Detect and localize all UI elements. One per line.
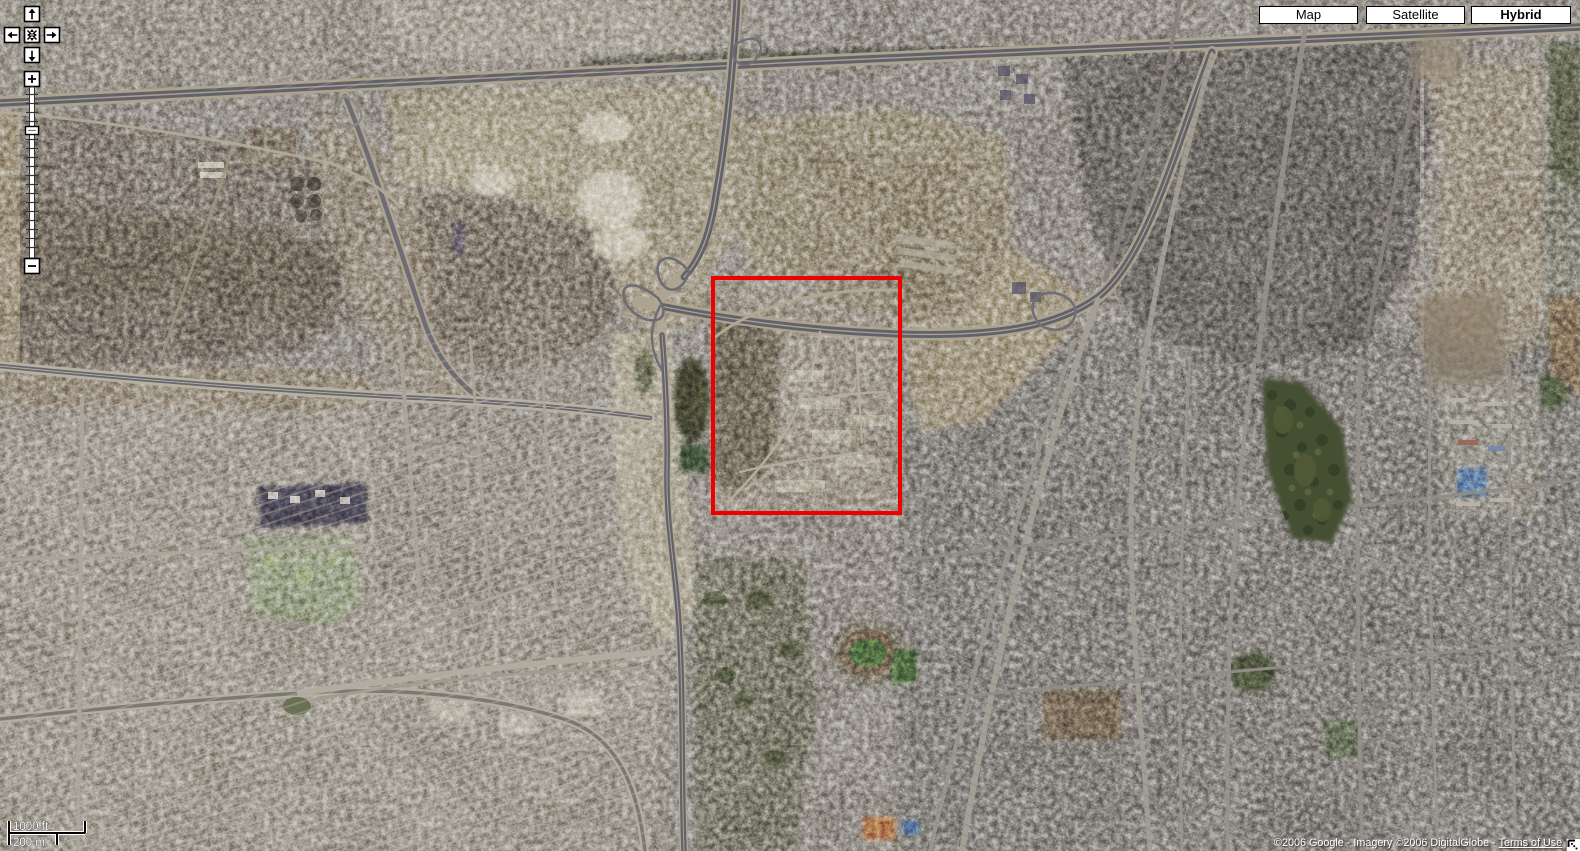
svg-text:1000 ft: 1000 ft bbox=[13, 821, 49, 833]
svg-text:200 m: 200 m bbox=[13, 837, 45, 849]
